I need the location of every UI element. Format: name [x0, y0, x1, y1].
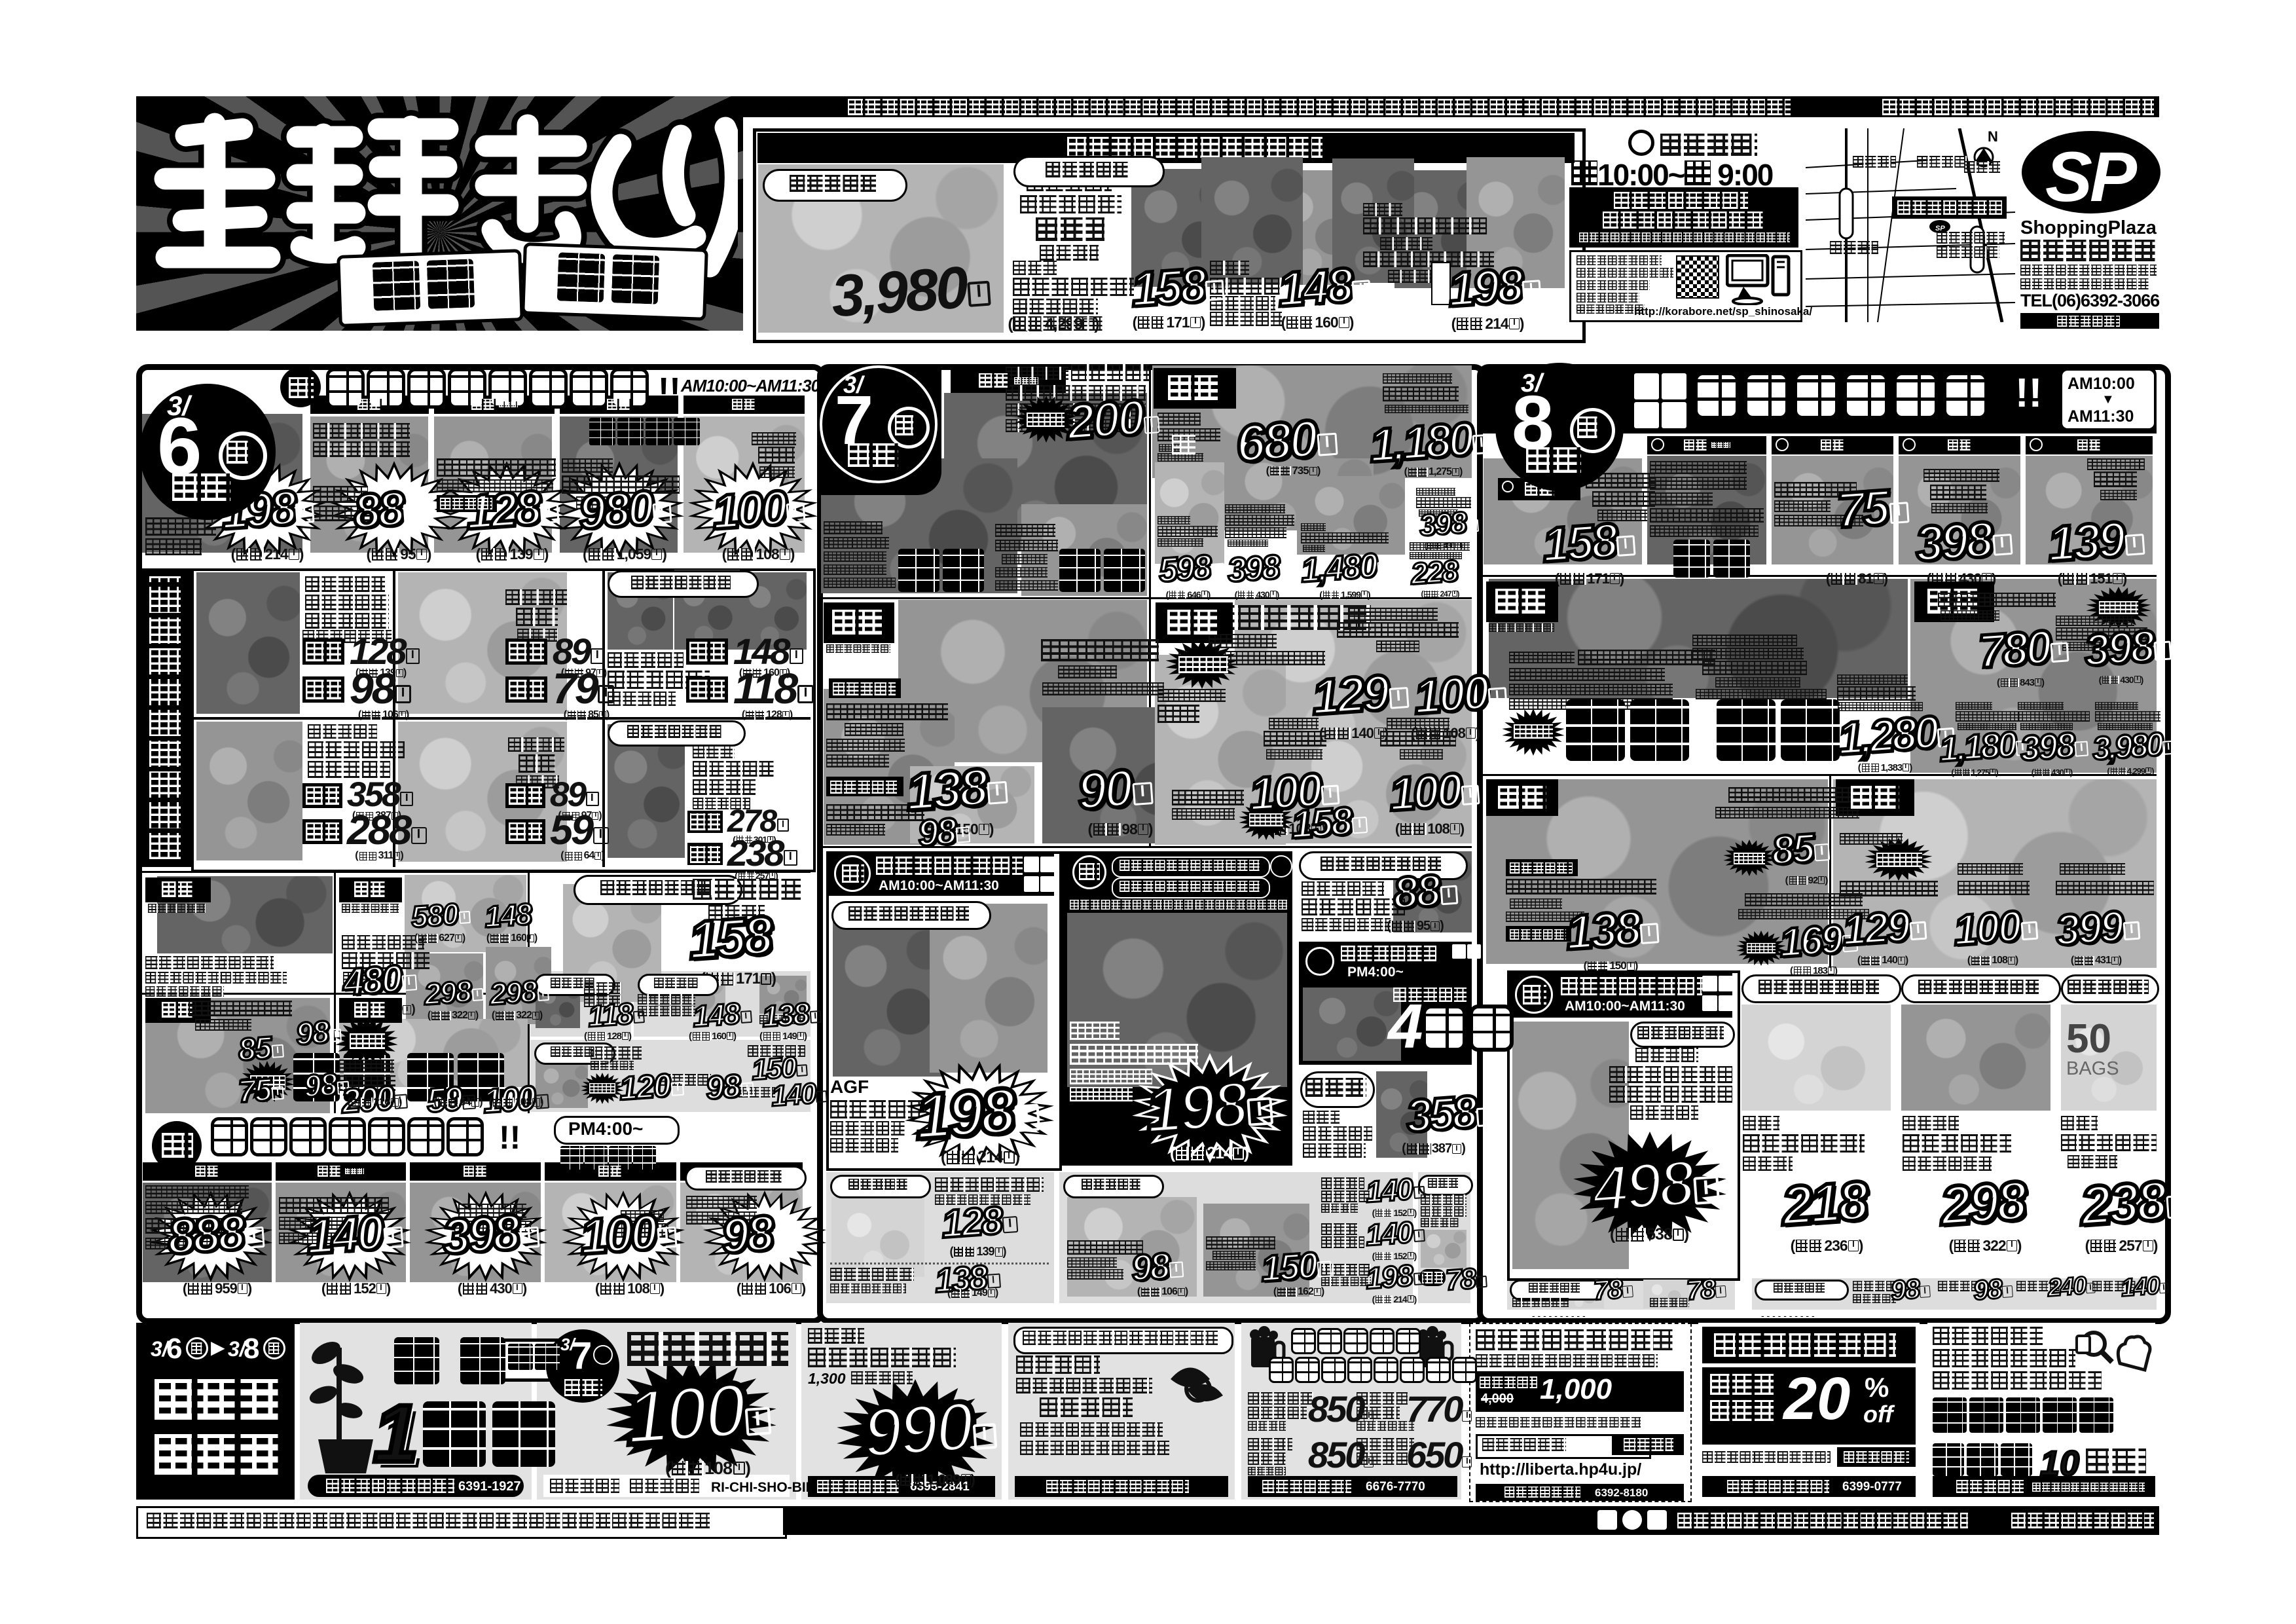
- svg-text:N: N: [1988, 128, 1998, 145]
